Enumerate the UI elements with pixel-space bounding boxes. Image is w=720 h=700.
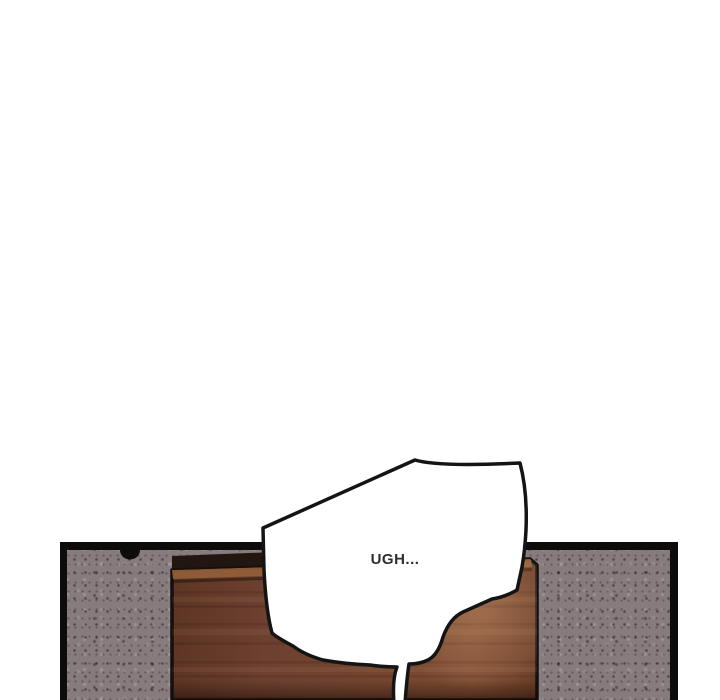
door-bottom-shadow bbox=[172, 680, 538, 700]
speech-bubble-text: UGH... bbox=[335, 551, 455, 568]
comic-page: UGH... bbox=[0, 0, 720, 700]
scene-art bbox=[0, 0, 720, 700]
wall-notch bbox=[120, 550, 140, 560]
